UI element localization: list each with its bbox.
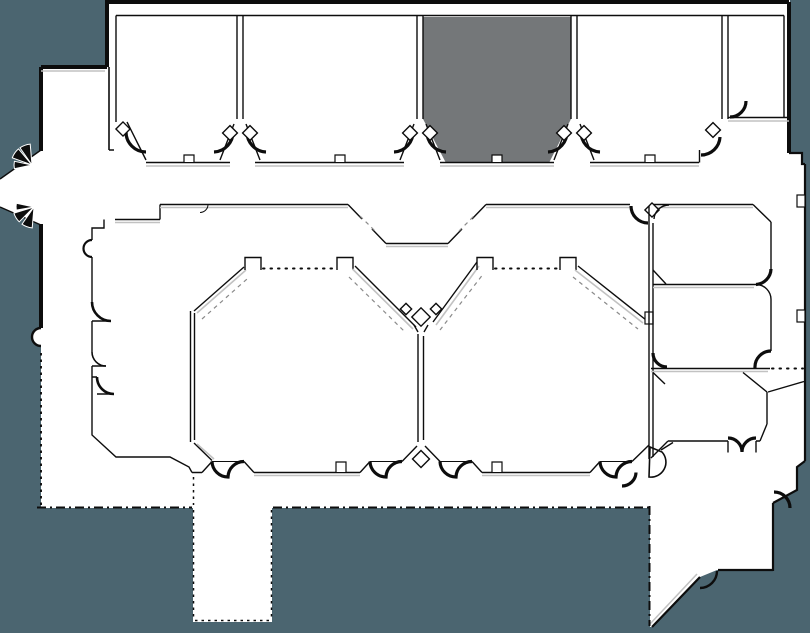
east-wall-pilaster	[797, 195, 805, 207]
floor-plan-svg	[0, 0, 810, 633]
floor-plan	[0, 0, 810, 633]
west-exit-door	[32, 328, 41, 346]
highlighted-room[interactable]	[423, 17, 571, 163]
east-wall-pilaster	[797, 310, 805, 322]
west-door-bump	[84, 240, 93, 257]
